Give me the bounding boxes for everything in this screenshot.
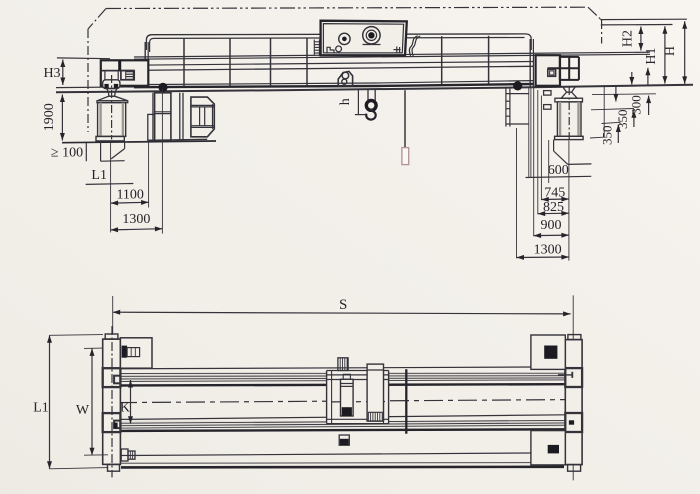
svg-text:L1: L1 — [33, 401, 49, 416]
svg-text:H: H — [663, 46, 678, 56]
svg-text:745: 745 — [544, 185, 565, 200]
svg-text:300: 300 — [629, 95, 644, 115]
svg-text:K: K — [120, 400, 130, 415]
svg-text:1900: 1900 — [42, 103, 57, 131]
svg-text:1100: 1100 — [116, 187, 143, 202]
svg-text:≥ 100: ≥ 100 — [51, 146, 83, 161]
svg-text:L1: L1 — [91, 168, 107, 183]
svg-text:1300: 1300 — [534, 242, 562, 257]
svg-text:600: 600 — [548, 163, 569, 178]
svg-text:350: 350 — [600, 126, 615, 146]
svg-text:W: W — [76, 403, 90, 418]
svg-text:825: 825 — [543, 200, 564, 215]
svg-text:350: 350 — [615, 110, 630, 130]
svg-text:H1: H1 — [644, 47, 659, 64]
svg-text:1300: 1300 — [122, 212, 150, 227]
svg-text:H2: H2 — [620, 30, 635, 47]
svg-text:h: h — [338, 98, 353, 105]
svg-text:H3: H3 — [43, 66, 60, 81]
svg-text:S: S — [339, 297, 347, 313]
svg-text:900: 900 — [541, 218, 562, 233]
